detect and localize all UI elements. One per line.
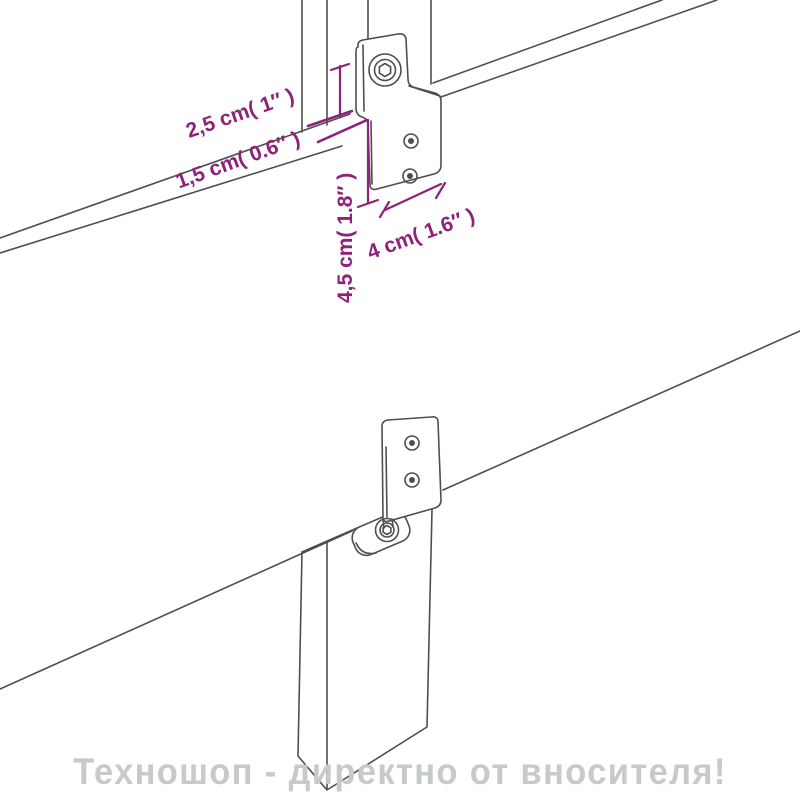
store-watermark: Техношоп - директно от вносителя! bbox=[28, 751, 772, 793]
dimension-label-bracket-height: 4,5 cm( 1.8″ ) bbox=[334, 131, 358, 303]
assembly-drawing bbox=[0, 0, 800, 800]
headboard-side-rail-right bbox=[433, 0, 717, 98]
product-diagram: 2,5 cm( 1″ ) 1,5 cm( 0.6″ ) 4,5 cm( 1.8″… bbox=[0, 0, 800, 800]
